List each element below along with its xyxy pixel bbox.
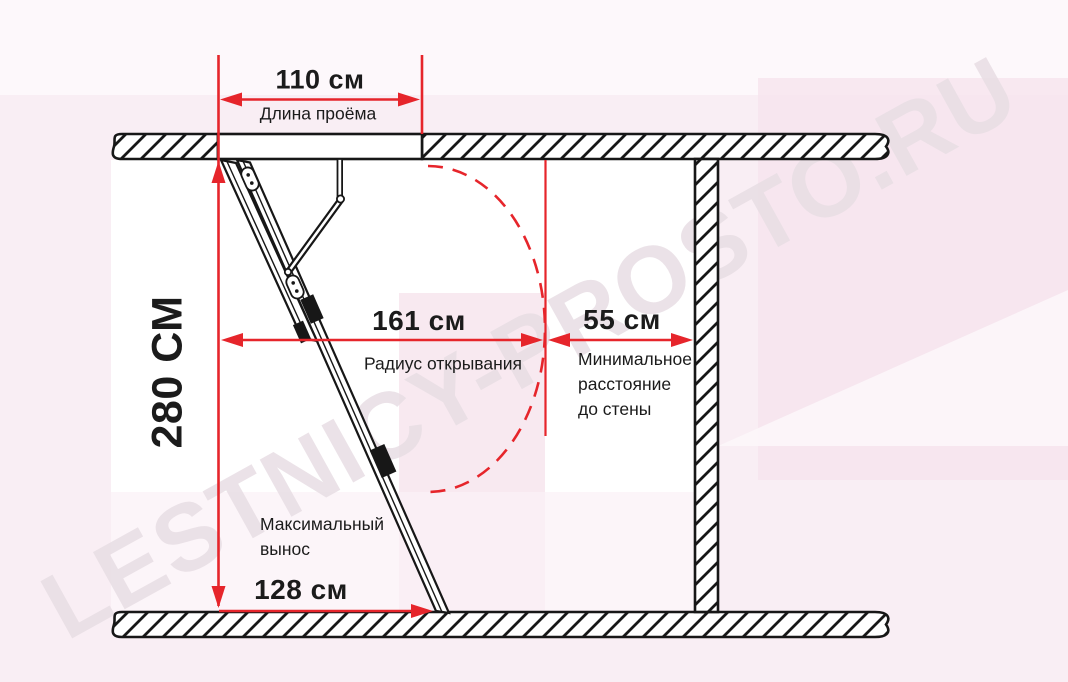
max-extension-label-line: Максимальный xyxy=(260,512,384,537)
max-extension-label: Максимальный вынос xyxy=(260,512,384,562)
floor-slab xyxy=(113,612,889,637)
wall-distance-label: Минимальное расстояние до стены xyxy=(578,347,692,422)
opening-radius-label: Радиус открывания xyxy=(364,354,522,375)
wall-distance-value: 55 см xyxy=(583,304,661,336)
strut-pivot-bottom xyxy=(285,269,291,275)
ceiling-slab-left xyxy=(113,134,218,159)
max-extension-label-line: вынос xyxy=(260,537,384,562)
opening-length-label: Длина проёма xyxy=(260,104,377,125)
wall-distance-label-line: до стены xyxy=(578,397,692,422)
opening-length-value: 110 см xyxy=(275,65,364,96)
ceiling-slab-right xyxy=(422,134,888,159)
max-extension-value: 128 см xyxy=(254,574,348,606)
door-hanger-rod xyxy=(338,159,343,197)
wall-distance-label-line: расстояние xyxy=(578,372,692,397)
wall-distance-label-line: Минимальное xyxy=(578,347,692,372)
hatch-opening xyxy=(218,134,422,159)
strut-pivot-top xyxy=(337,195,344,202)
wall-slab xyxy=(695,159,718,612)
opening-radius-value: 161 см xyxy=(372,305,466,337)
ladder-installation-diagram: LESTNICY-PROSTO.RU xyxy=(0,0,1068,682)
ceiling-height-value: 280 СМ xyxy=(144,296,193,449)
